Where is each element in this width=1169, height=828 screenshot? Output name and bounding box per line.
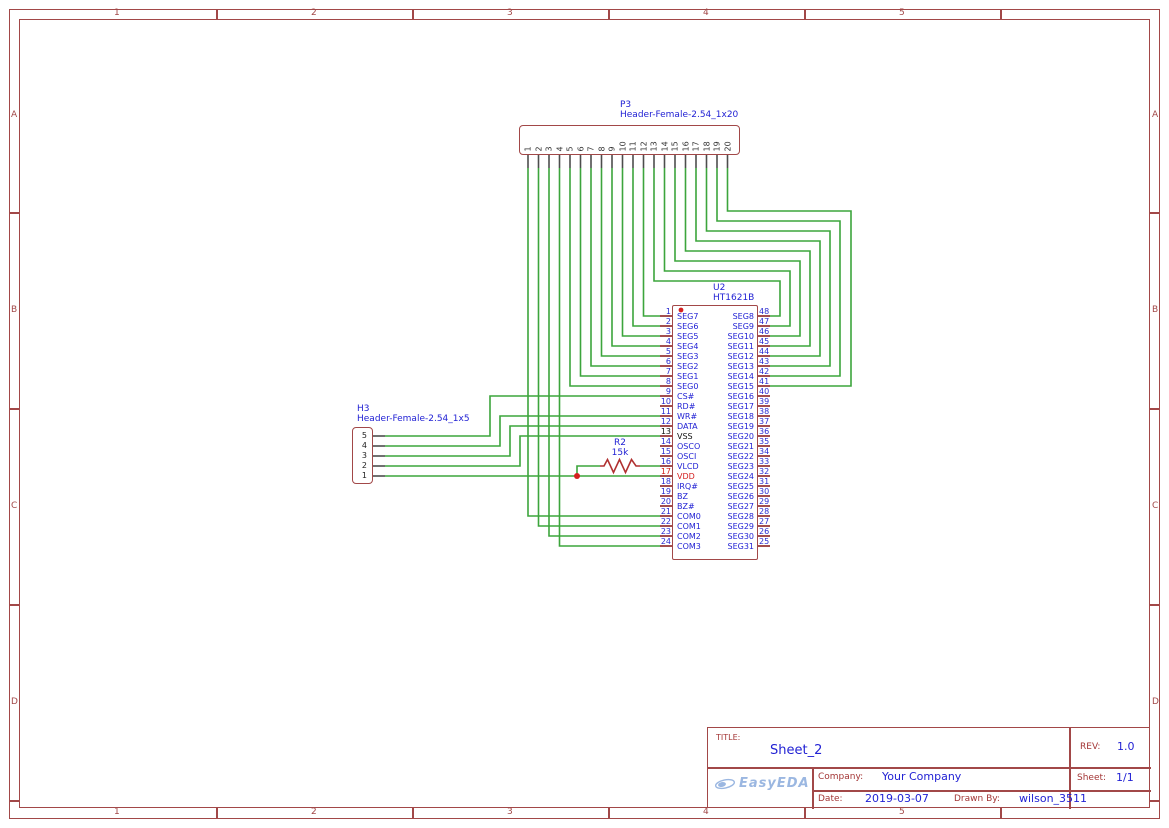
drawn-by-value[interactable]: wilson_3511 [1019, 793, 1087, 805]
u2-pin-number-31: 31 [759, 477, 784, 486]
p3-pin-number-7: 7 [587, 130, 596, 152]
h3-pin-number-1: 1 [354, 471, 367, 480]
u2-pin-name-CS#[interactable]: CS# [677, 392, 694, 401]
u2-pin-number-24: 24 [646, 537, 671, 546]
p3-pin-number-13: 13 [650, 130, 659, 152]
p3-pin-number-17: 17 [692, 130, 701, 152]
wire-P31-U221COM0[interactable] [528, 168, 660, 516]
u2-pin-name-SEG14[interactable]: SEG14 [698, 372, 754, 381]
u2-pin-number-36: 36 [759, 427, 784, 436]
u2-pin-number-4: 4 [646, 337, 671, 346]
u2-pin-name-SEG7[interactable]: SEG7 [677, 312, 698, 321]
h3-pin-number-5: 5 [354, 431, 367, 440]
p3-ref-label[interactable]: P3 [620, 100, 631, 110]
u2-pin-number-12: 12 [646, 417, 671, 426]
u2-pin-number-40: 40 [759, 387, 784, 396]
u2-pin-name-SEG11[interactable]: SEG11 [698, 342, 754, 351]
easyeda-logo-text: EasyEDA [739, 776, 810, 791]
u2-pin-name-IRQ#[interactable]: IRQ# [677, 482, 698, 491]
u2-pin-number-39: 39 [759, 397, 784, 406]
wire-P34-U224COM3[interactable] [560, 168, 661, 546]
sheet-label: Sheet: [1077, 773, 1106, 784]
u2-pin-name-SEG17[interactable]: SEG17 [698, 402, 754, 411]
u2-pin-name-SEG26[interactable]: SEG26 [698, 492, 754, 501]
u2-pin-number-6: 6 [646, 357, 671, 366]
u2-pin-number-28: 28 [759, 507, 784, 516]
u2-pin-number-23: 23 [646, 527, 671, 536]
wire-P32-U222COM1[interactable] [539, 168, 661, 526]
u2-pin-name-SEG16[interactable]: SEG16 [698, 392, 754, 401]
u2-pin-name-SEG27[interactable]: SEG27 [698, 502, 754, 511]
company-value[interactable]: Your Company [882, 771, 961, 783]
u2-pin-number-26: 26 [759, 527, 784, 536]
title-block-divider [812, 767, 814, 809]
h3-ref-label[interactable]: H3 [357, 404, 370, 414]
u2-value-label[interactable]: HT1621B [713, 293, 754, 303]
u2-pin-number-44: 44 [759, 347, 784, 356]
u2-pin-name-SEG13[interactable]: SEG13 [698, 362, 754, 371]
title-label: TITLE: [716, 732, 740, 743]
rev-value[interactable]: 1.0 [1117, 741, 1135, 753]
u2-pin-number-29: 29 [759, 497, 784, 506]
u2-pin-name-SEG4[interactable]: SEG4 [677, 342, 698, 351]
u2-pin-name-SEG20[interactable]: SEG20 [698, 432, 754, 441]
p3-pin-number-14: 14 [660, 130, 669, 152]
u2-pin-number-34: 34 [759, 447, 784, 456]
wire-R21-VDDnetjunction[interactable] [577, 466, 600, 476]
p3-pin-number-16: 16 [681, 130, 690, 152]
rev-label: REV: [1080, 742, 1100, 753]
u2-pin-name-DATA[interactable]: DATA [677, 422, 698, 431]
u2-pin-name-BZ#[interactable]: BZ# [677, 502, 695, 511]
u2-pin-name-SEG19[interactable]: SEG19 [698, 422, 754, 431]
u2-pin-name-SEG29[interactable]: SEG29 [698, 522, 754, 531]
u2-pin-number-7: 7 [646, 367, 671, 376]
u2-pin-number-15: 15 [646, 447, 671, 456]
company-label: Company: [818, 772, 863, 783]
u2-pin-number-42: 42 [759, 367, 784, 376]
u2-pin-number-10: 10 [646, 397, 671, 406]
u2-pin-name-SEG21[interactable]: SEG21 [698, 442, 754, 451]
p3-value-label[interactable]: Header-Female-2.54_1x20 [620, 110, 738, 120]
u2-pin-number-9: 9 [646, 387, 671, 396]
u2-pin-number-14: 14 [646, 437, 671, 446]
u2-pin-name-VLCD[interactable]: VLCD [677, 462, 699, 471]
u2-pin-name-SEG10[interactable]: SEG10 [698, 332, 754, 341]
date-label: Date: [818, 794, 843, 805]
u2-pin-name-SEG8[interactable]: SEG8 [698, 312, 754, 321]
p3-pin-number-1: 1 [524, 130, 533, 152]
wire-P312-U21SEG7[interactable] [644, 168, 661, 316]
u2-pin-number-32: 32 [759, 467, 784, 476]
u2-pin-number-13: 13 [646, 427, 671, 436]
u2-pin-number-33: 33 [759, 457, 784, 466]
u2-pin-number-18: 18 [646, 477, 671, 486]
p3-pin-number-5: 5 [566, 130, 575, 152]
p3-pin-number-2: 2 [534, 130, 543, 152]
p3-pin-number-6: 6 [576, 130, 585, 152]
u2-pin-number-48: 48 [759, 307, 784, 316]
u2-pin-number-5: 5 [646, 347, 671, 356]
u2-pin-number-46: 46 [759, 327, 784, 336]
u2-pin-name-SEG31[interactable]: SEG31 [698, 542, 754, 551]
p3-pin-number-10: 10 [618, 130, 627, 152]
sheet-title[interactable]: Sheet_2 [770, 744, 822, 758]
u2-pin-name-SEG23[interactable]: SEG23 [698, 462, 754, 471]
u2-pin-name-SEG15[interactable]: SEG15 [698, 382, 754, 391]
u2-pin-name-SEG22[interactable]: SEG22 [698, 452, 754, 461]
junction-dot [574, 473, 580, 479]
u2-pin-number-37: 37 [759, 417, 784, 426]
u2-pin-number-2: 2 [646, 317, 671, 326]
u2-pin-number-27: 27 [759, 517, 784, 526]
h3-pin-number-4: 4 [354, 441, 367, 450]
u2-pin-name-OSCI[interactable]: OSCI [677, 452, 696, 461]
u2-pin-number-19: 19 [646, 487, 671, 496]
u2-pin-name-SEG18[interactable]: SEG18 [698, 412, 754, 421]
drawn-by-label: Drawn By: [954, 794, 1000, 805]
u2-pin-number-22: 22 [646, 517, 671, 526]
p3-pin-number-8: 8 [597, 130, 606, 152]
u2-pin-number-25: 25 [759, 537, 784, 546]
p3-pin-number-9: 9 [608, 130, 617, 152]
h3-value-label[interactable]: Header-Female-2.54_1x5 [357, 414, 470, 424]
sheet-value[interactable]: 1/1 [1116, 772, 1134, 784]
title-block: TITLE: Sheet_2 REV: 1.0 EasyEDA Company:… [707, 727, 1150, 808]
easyeda-logo-icon [714, 777, 736, 791]
u2-pin-number-1: 1 [646, 307, 671, 316]
u2-pin-number-38: 38 [759, 407, 784, 416]
u2-pin-number-47: 47 [759, 317, 784, 326]
r2-value-label[interactable]: 15k [596, 448, 644, 458]
u2-pin-name-SEG25[interactable]: SEG25 [698, 482, 754, 491]
u2-pin-name-WR#[interactable]: WR# [677, 412, 697, 421]
p3-pin-number-3: 3 [545, 130, 554, 152]
u2-pin-number-20: 20 [646, 497, 671, 506]
u2-pin-number-41: 41 [759, 377, 784, 386]
p3-pin-number-11: 11 [629, 130, 638, 152]
u2-pin-name-SEG24[interactable]: SEG24 [698, 472, 754, 481]
p3-pin-number-20: 20 [723, 130, 732, 152]
u2-pin-number-16: 16 [646, 457, 671, 466]
u2-pin-name-SEG2[interactable]: SEG2 [677, 362, 698, 371]
u2-pin-name-VSS[interactable]: VSS [677, 432, 693, 441]
u2-pin-name-SEG0[interactable]: SEG0 [677, 382, 698, 391]
u2-pin-number-11: 11 [646, 407, 671, 416]
date-value[interactable]: 2019-03-07 [865, 793, 929, 805]
u2-pin-name-BZ[interactable]: BZ [677, 492, 688, 501]
p3-pin-number-19: 19 [713, 130, 722, 152]
u2-pin-name-SEG5[interactable]: SEG5 [677, 332, 698, 341]
u2-pin-name-SEG9[interactable]: SEG9 [698, 322, 754, 331]
u2-pin-name-SEG12[interactable]: SEG12 [698, 352, 754, 361]
p3-pin-number-18: 18 [702, 130, 711, 152]
resistor-r2-body[interactable] [600, 460, 640, 473]
u2-ref-label[interactable]: U2 [713, 283, 725, 293]
u2-pin-name-SEG6[interactable]: SEG6 [677, 322, 698, 331]
u2-pin-number-45: 45 [759, 337, 784, 346]
p3-pin-number-4: 4 [555, 130, 564, 152]
u2-pin-number-35: 35 [759, 437, 784, 446]
u2-pin-name-SEG30[interactable]: SEG30 [698, 532, 754, 541]
u2-pin-name-VDD[interactable]: VDD [677, 472, 695, 481]
easyeda-logo: EasyEDA [714, 776, 810, 791]
title-block-divider [708, 767, 1151, 769]
u2-pin-name-OSCO[interactable]: OSCO [677, 442, 700, 451]
p3-pin-number-15: 15 [671, 130, 680, 152]
u2-pin-number-43: 43 [759, 357, 784, 366]
title-block-divider [812, 790, 1151, 792]
u2-pin-number-8: 8 [646, 377, 671, 386]
u2-pin-name-SEG1[interactable]: SEG1 [677, 372, 698, 381]
u2-pin-name-SEG28[interactable]: SEG28 [698, 512, 754, 521]
wire-P311-U22SEG6[interactable] [633, 168, 660, 326]
p3-pin-number-12: 12 [639, 130, 648, 152]
u2-pin-number-30: 30 [759, 487, 784, 496]
u2-pin-number-17: 17 [646, 467, 671, 476]
h3-pin-number-2: 2 [354, 461, 367, 470]
schematic-sheet: 1122334455AABBCCDD P3 Header-Female-2.54… [0, 0, 1169, 828]
u2-pin-name-RD#[interactable]: RD# [677, 402, 695, 411]
h3-pin-number-3: 3 [354, 451, 367, 460]
r2-ref-label[interactable]: R2 [596, 438, 644, 448]
u2-pin-number-21: 21 [646, 507, 671, 516]
u2-pin-name-SEG3[interactable]: SEG3 [677, 352, 698, 361]
u2-pin-number-3: 3 [646, 327, 671, 336]
